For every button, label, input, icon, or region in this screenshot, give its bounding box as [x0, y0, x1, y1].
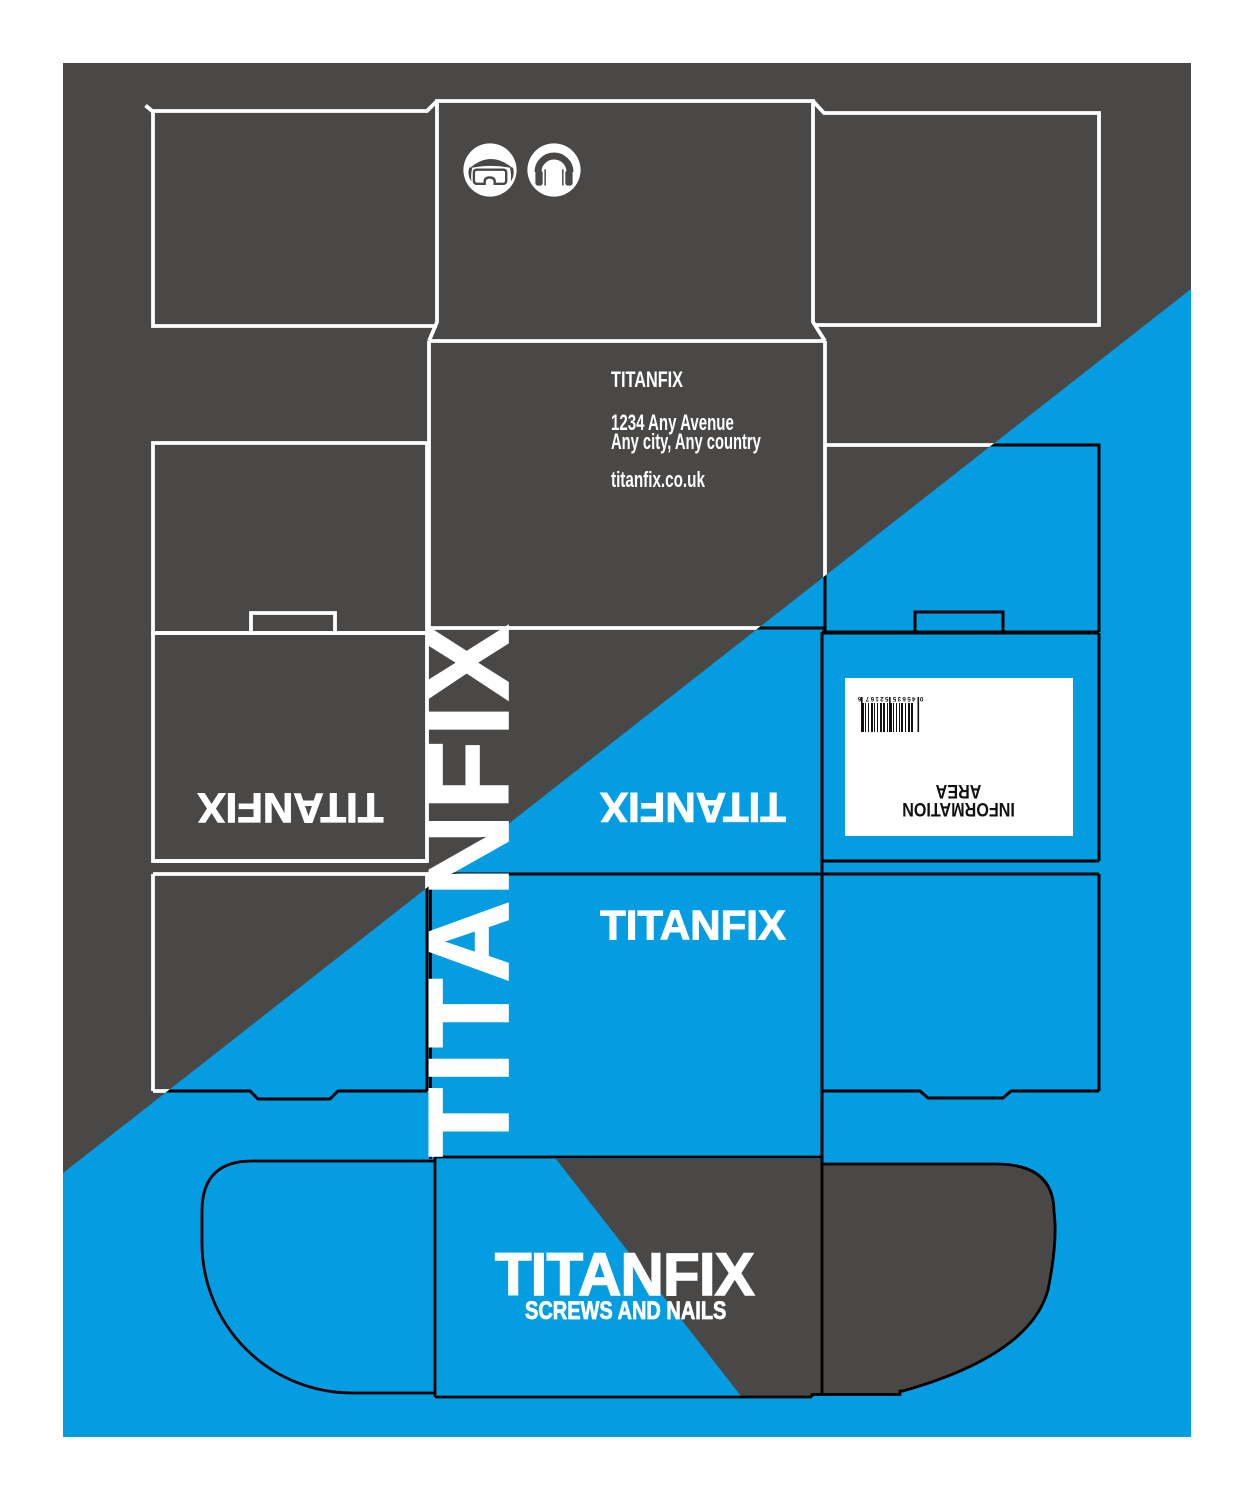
svg-text:0 45635 52167 6: 0 45635 52167 6 — [857, 695, 924, 702]
svg-text:titanfix.co.uk: titanfix.co.uk — [611, 468, 705, 492]
svg-text:Any city, Any country: Any city, Any country — [611, 429, 761, 454]
svg-text:TITANFIX: TITANFIX — [600, 784, 786, 831]
svg-text:TITANFIX: TITANFIX — [406, 621, 533, 1157]
svg-text:SCREWS AND NAILS: SCREWS AND NAILS — [525, 1297, 726, 1325]
svg-text:TITANFIX: TITANFIX — [600, 902, 786, 949]
svg-text:TITANFIX: TITANFIX — [611, 368, 683, 393]
svg-text:TITANFIX: TITANFIX — [198, 785, 384, 832]
svg-text:AREA: AREA — [935, 781, 981, 803]
